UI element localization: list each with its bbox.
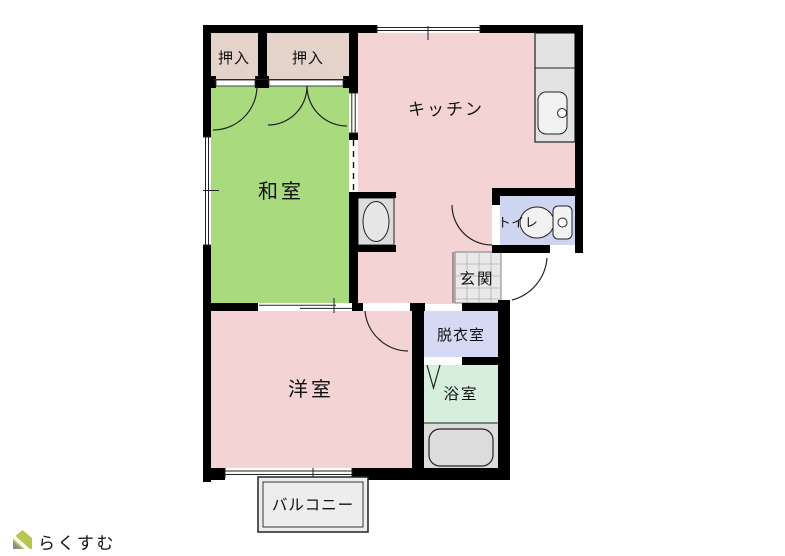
label-western-room: 洋室 [288,378,334,401]
wall-segment [203,25,211,482]
wall-segment [462,357,498,365]
wall-segment [358,192,396,198]
bathtub-icon [424,423,498,466]
logo-rakusumu: らくすむ [13,530,116,553]
label-closet-left: 押入 [218,50,250,67]
label-japanese-room: 和室 [258,180,304,203]
floorplan-image: 押入 押入 和室 キッチン トイレ 玄関 脱衣室 洋室 浴室 バルコニー らくす… [0,0,785,556]
logo-house-icon [13,530,32,551]
wall-segment [492,188,583,196]
dashed-opening [349,140,358,192]
label-bathroom: 浴室 [443,385,478,403]
washbasin-icon [358,198,394,245]
closet-doors [213,80,347,87]
label-closet-right: 押入 [292,50,324,67]
wall-segment [492,188,500,205]
logo-text: らくすむ [38,534,116,553]
label-balcony: バルコニー [272,497,354,514]
wall-segment [358,245,396,252]
sliding-door-washitsu-kitchen [349,93,358,133]
closet-door [216,80,255,86]
closet-door [269,80,343,86]
wall-segment [343,76,358,88]
wall-segment [492,245,550,253]
wall-segment [412,303,424,480]
label-dressing-room: 脱衣室 [437,327,485,344]
door-arc-entrance [512,258,547,300]
kitchen-sink-icon [535,33,575,142]
floorplan-svg: 押入 押入 和室 キッチン トイレ 玄関 脱衣室 洋室 浴室 バルコニー らくす… [0,0,785,556]
wall-segment [498,300,510,480]
wall-segment [575,25,583,253]
sink-faucet [558,109,567,118]
room-hallway [358,253,455,304]
bathtub [429,429,493,466]
label-toilet: トイレ [498,215,539,230]
label-kitchen: キッチン [408,100,484,119]
wall-segment [203,76,216,88]
opening-yoshitsu-door [363,303,410,311]
label-entrance: 玄関 [459,270,494,288]
